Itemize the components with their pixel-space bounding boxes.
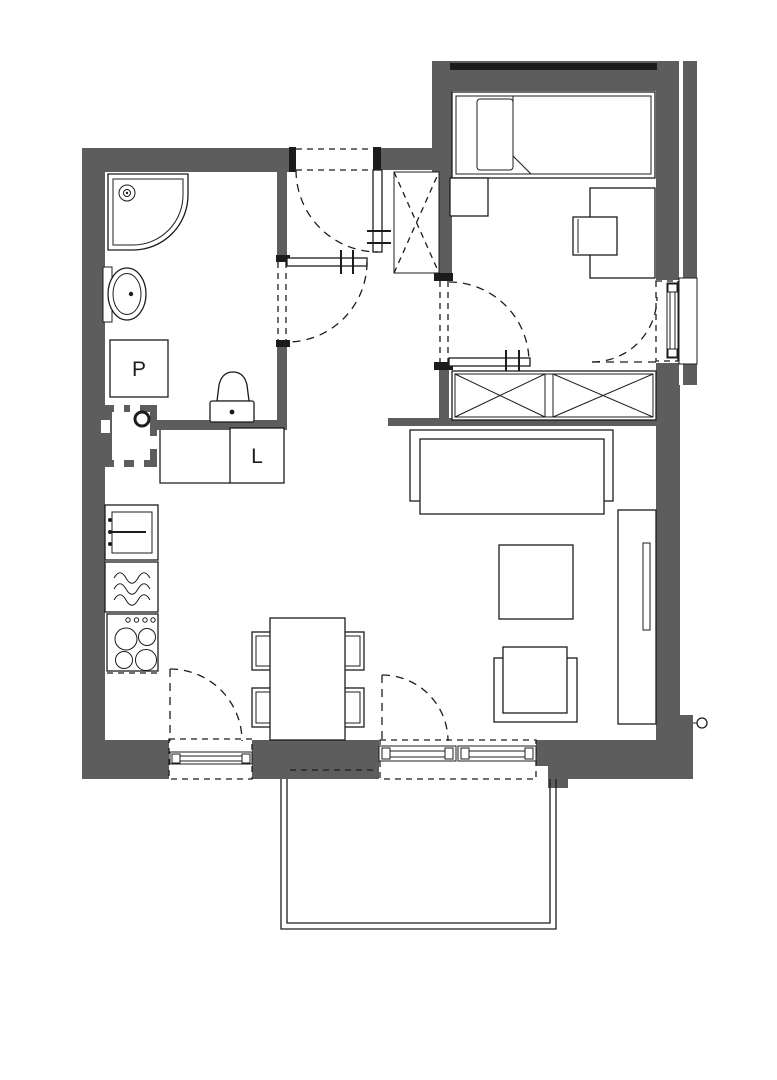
- toilet-bowl: [217, 372, 249, 401]
- shower-drain-dot: [126, 192, 128, 194]
- desk-chair-seat: [573, 217, 617, 255]
- shaft-notch: [101, 420, 110, 433]
- window-sw-cap-right: [242, 754, 250, 763]
- shaft-notch: [114, 460, 124, 469]
- shower-tray-inner: [113, 179, 183, 245]
- wall-east-lower: [656, 363, 680, 740]
- washbasin-tap-dot: [129, 292, 133, 296]
- tv-unit: [618, 510, 656, 724]
- window-sw-cap-left: [172, 754, 180, 763]
- entry-frame-tick-left: [289, 147, 296, 172]
- window-east-cap-bottom: [668, 349, 677, 357]
- window-east-swing-arc: [592, 297, 657, 362]
- facade-circle-icon: [697, 718, 707, 728]
- balcony: [281, 779, 556, 929]
- lintel-beam: [450, 63, 657, 70]
- bedroom-window-east: [592, 278, 697, 364]
- bed-pillow: [477, 99, 513, 170]
- hallway: [278, 149, 530, 374]
- dining-set: [252, 618, 364, 740]
- sofa: [410, 430, 613, 514]
- window-east-sill-outer: [679, 278, 697, 364]
- shaft-notch: [149, 436, 158, 449]
- balcony-door-cap: [382, 748, 390, 759]
- balcony-railing-inner: [287, 779, 550, 923]
- balcony-door-cap: [461, 748, 469, 759]
- balcony-door-swing-arc: [382, 675, 448, 741]
- shower: [108, 174, 188, 250]
- wall-bathroom-east-lower: [277, 347, 287, 420]
- bath-frame-tick-bottom: [276, 340, 290, 347]
- tv-screen: [643, 543, 650, 630]
- sink-tap-dot: [108, 530, 112, 534]
- shaft-notch: [114, 403, 124, 412]
- toilet: [210, 372, 254, 422]
- dishwasher: [105, 562, 158, 612]
- sofa-seat: [420, 439, 604, 514]
- washing-machine: P: [110, 340, 168, 397]
- wall-bedroom-door-stub: [439, 362, 449, 425]
- sink-tap-dot: [108, 542, 112, 546]
- washbasin-bowl: [108, 268, 146, 320]
- bedroom-door-swing-arc: [449, 282, 529, 362]
- kitchen-sink: [105, 505, 158, 560]
- facade-detail: [693, 718, 707, 728]
- bathroom-door: [278, 250, 367, 342]
- wall-bathroom-east-upper: [277, 172, 287, 255]
- fridge: L: [230, 428, 284, 483]
- shaft-notch: [134, 460, 144, 469]
- dining-table: [270, 618, 345, 740]
- balcony-door-glass-left: [390, 751, 445, 757]
- entrance-opening-dash: [296, 149, 373, 170]
- wall-south-left: [83, 740, 169, 779]
- wall-south-right-upper: [536, 740, 680, 766]
- nightstand: [450, 178, 488, 216]
- wardrobe: [452, 371, 656, 420]
- wall-west: [82, 148, 105, 779]
- toilet-flush-dot: [230, 410, 235, 415]
- counter-edge: [160, 430, 230, 483]
- bedroom-door-leaf: [449, 358, 530, 366]
- bedroom-opening-dash: [440, 281, 448, 362]
- washbasin: [103, 267, 146, 322]
- wall-balcony-pier: [548, 779, 568, 788]
- bathroom-door-swing-arc: [287, 262, 367, 342]
- washing-machine-label: P: [132, 358, 146, 381]
- wall-south-right-lower: [548, 766, 693, 779]
- wall-east-upper: [656, 88, 680, 280]
- hall-shaft: [394, 172, 439, 273]
- entry-frame-tick-right: [373, 147, 381, 171]
- stove: [107, 614, 158, 673]
- wall-bathroom-north: [82, 148, 289, 172]
- bedroom-frame-tick-top: [434, 273, 453, 281]
- window-east-cap-top: [668, 284, 677, 292]
- shower-tray-outer: [108, 174, 188, 250]
- dishwasher-box: [105, 562, 158, 612]
- shaft-pipe-icon: [135, 412, 149, 426]
- wall-east-bottom-outer: [679, 715, 693, 779]
- armchair: [494, 647, 577, 722]
- desk-chair: [573, 217, 617, 255]
- entrance-door-leaf: [373, 170, 382, 252]
- window-sw-swing-arc: [170, 669, 242, 741]
- fridge-label: L: [251, 445, 263, 468]
- entrance-door-swing-arc: [296, 170, 378, 252]
- balcony-railing-outer: [281, 779, 556, 929]
- bedroom-door: [440, 281, 530, 374]
- balcony-door-cap: [445, 748, 453, 759]
- living-room: [252, 430, 656, 740]
- wall-east-under-window: [656, 363, 697, 385]
- apartment-floor-plan: P: [0, 0, 777, 1080]
- window-east-glass: [670, 292, 675, 349]
- installation-shaft: [101, 403, 158, 469]
- shaft-notch: [130, 403, 140, 412]
- bathroom-door-leaf: [287, 258, 367, 266]
- window-sw-glass: [180, 756, 242, 761]
- sink-tap-dot: [108, 518, 112, 522]
- bathroom-opening-dash: [278, 262, 286, 340]
- bed: [452, 92, 655, 178]
- armchair-seat: [503, 647, 567, 713]
- balcony-door-cap: [525, 748, 533, 759]
- wardrobe-outer: [452, 371, 656, 420]
- coffee-table: [499, 545, 573, 619]
- floor-plan-page: P: [0, 0, 777, 1080]
- wall-south-mid: [252, 740, 379, 779]
- window-southwest: [169, 669, 252, 779]
- balcony-door-glass-right: [469, 751, 525, 757]
